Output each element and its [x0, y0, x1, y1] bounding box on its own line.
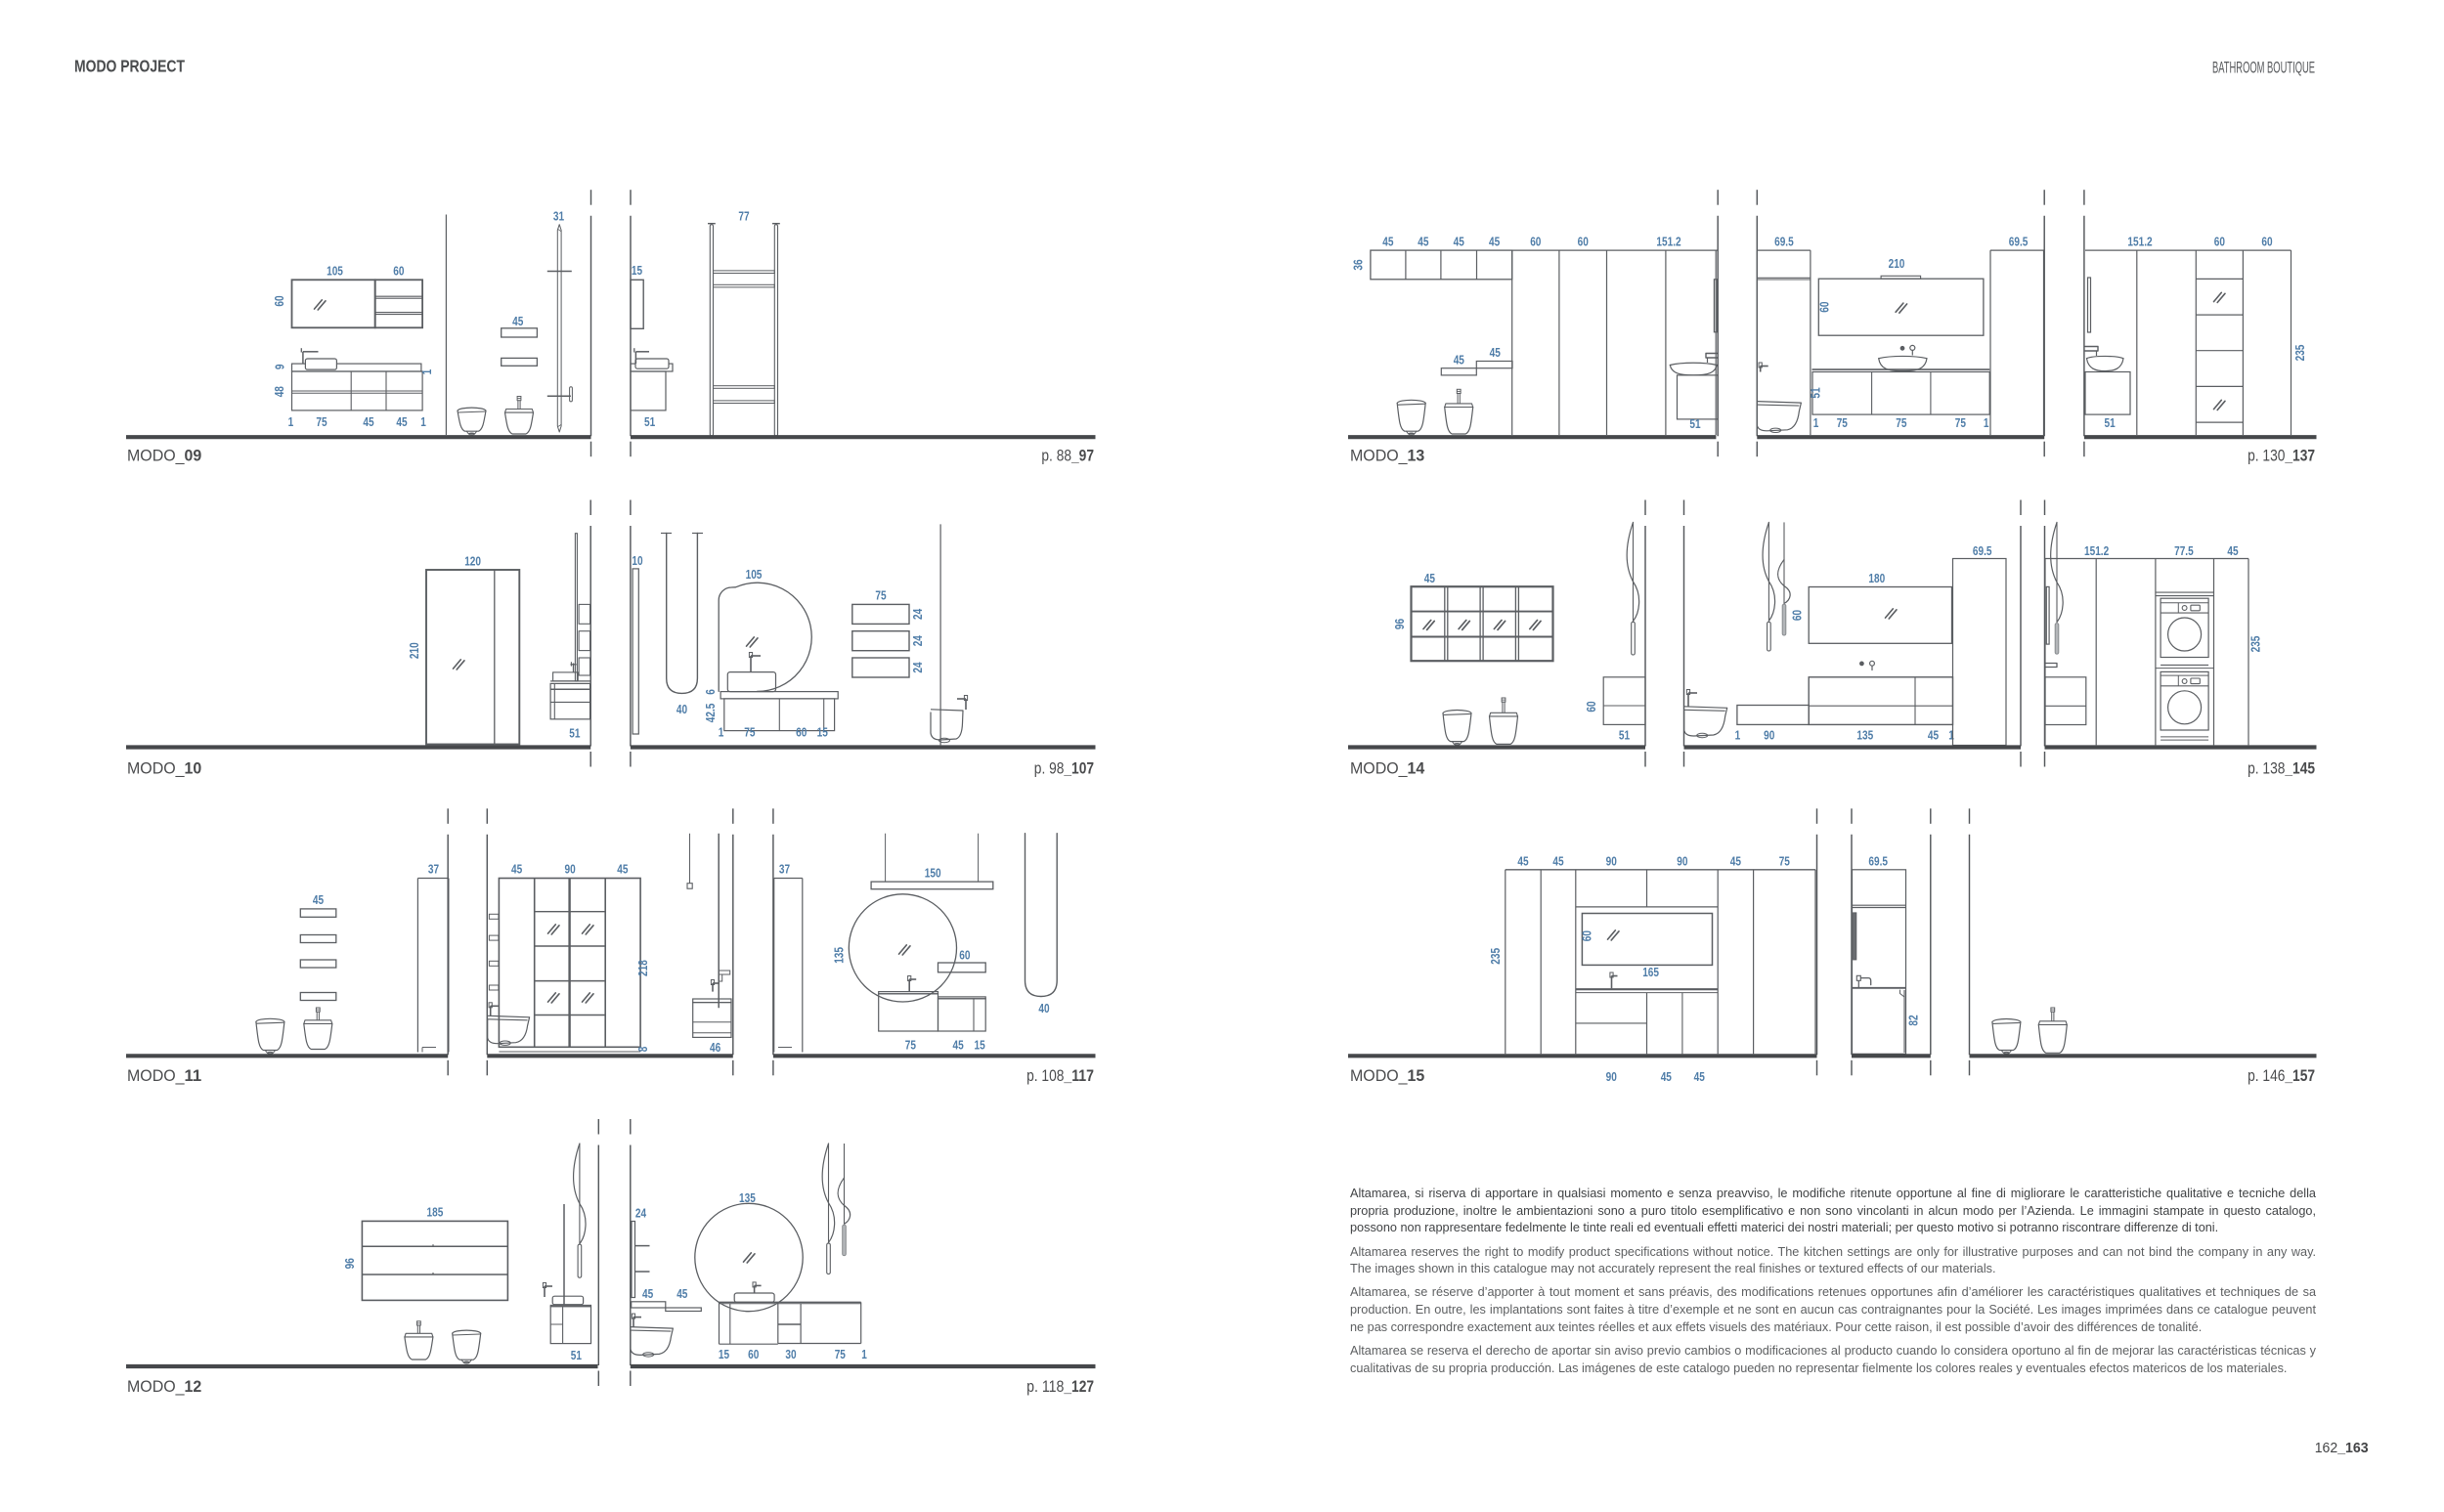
svg-text:15: 15: [719, 1348, 729, 1361]
svg-text:51: 51: [571, 1349, 582, 1362]
svg-text:24: 24: [635, 1207, 646, 1221]
svg-text:45: 45: [1454, 353, 1464, 367]
svg-text:p. 108: p. 108: [1026, 1066, 1064, 1085]
svg-text:45: 45: [363, 415, 373, 429]
svg-text:45: 45: [1928, 729, 1939, 743]
svg-text:120: 120: [464, 555, 481, 569]
svg-text:77: 77: [738, 210, 749, 224]
svg-text:MODO_: MODO_: [1350, 758, 1408, 777]
svg-text:_137: _137: [2285, 447, 2315, 465]
svg-text:60: 60: [748, 1348, 759, 1361]
svg-text:150: 150: [925, 867, 941, 881]
svg-text:24: 24: [911, 635, 925, 646]
svg-text:96: 96: [1393, 619, 1407, 629]
svg-text:45: 45: [642, 1287, 653, 1301]
svg-text:p. 98: p. 98: [1034, 758, 1065, 777]
svg-text:45: 45: [313, 893, 324, 907]
svg-text:151.2: 151.2: [2084, 544, 2109, 558]
svg-text:p. 138: p. 138: [2248, 758, 2285, 777]
svg-text:235: 235: [2249, 636, 2263, 653]
svg-text:69.5: 69.5: [1868, 854, 1888, 868]
svg-text:105: 105: [327, 265, 343, 279]
svg-text:10: 10: [185, 758, 202, 777]
svg-text:60: 60: [393, 265, 404, 279]
svg-text:77.5: 77.5: [2174, 544, 2194, 558]
svg-text:210: 210: [408, 642, 421, 659]
svg-text:135: 135: [739, 1191, 756, 1205]
svg-text:_157: _157: [2285, 1066, 2315, 1085]
svg-text:6: 6: [704, 689, 718, 695]
svg-text:_127: _127: [1064, 1377, 1094, 1396]
svg-text:75: 75: [1896, 416, 1906, 430]
svg-text:1: 1: [420, 369, 434, 375]
svg-text:96: 96: [343, 1258, 357, 1269]
svg-text:90: 90: [1764, 729, 1774, 743]
svg-text:11: 11: [185, 1066, 202, 1085]
svg-text:p. 118: p. 118: [1026, 1377, 1064, 1396]
svg-text:MODO PROJECT: MODO PROJECT: [74, 57, 185, 76]
svg-text:46: 46: [710, 1041, 720, 1055]
svg-text:90: 90: [1677, 854, 1687, 868]
svg-text:235: 235: [1489, 948, 1503, 965]
svg-text:MODO_: MODO_: [127, 1377, 185, 1396]
svg-text:69.5: 69.5: [1774, 236, 1794, 249]
svg-text:48: 48: [273, 386, 286, 397]
svg-text:BATHROOM BOUTIQUE: BATHROOM BOUTIQUE: [2212, 60, 2315, 77]
svg-text:82: 82: [1907, 1015, 1921, 1025]
svg-text:218: 218: [636, 960, 650, 976]
svg-text:60: 60: [1818, 302, 1832, 313]
svg-text:_97: _97: [1070, 447, 1094, 465]
svg-text:75: 75: [1955, 416, 1966, 430]
svg-text:15: 15: [632, 264, 642, 278]
svg-text:90: 90: [1606, 1070, 1617, 1084]
svg-text:60: 60: [1791, 610, 1805, 621]
svg-text:45: 45: [1694, 1070, 1705, 1084]
svg-text:75: 75: [316, 415, 327, 429]
svg-text:45: 45: [953, 1039, 964, 1053]
svg-text:37: 37: [779, 863, 790, 877]
svg-text:1: 1: [1813, 416, 1819, 430]
svg-text:45: 45: [2227, 544, 2238, 558]
svg-text:60: 60: [2214, 236, 2225, 249]
svg-text:31: 31: [553, 210, 564, 224]
svg-text:45: 45: [1454, 236, 1464, 249]
svg-text:40: 40: [1038, 1002, 1049, 1015]
svg-text:30: 30: [785, 1348, 796, 1361]
svg-text:69.5: 69.5: [2009, 236, 2029, 249]
svg-text:180: 180: [1868, 572, 1885, 585]
svg-text:42.5: 42.5: [704, 704, 718, 723]
svg-text:10: 10: [632, 554, 642, 568]
svg-text:60: 60: [2261, 236, 2272, 249]
svg-text:165: 165: [1642, 966, 1659, 979]
svg-text:1: 1: [861, 1348, 867, 1361]
svg-text:162: 162: [2315, 1441, 2338, 1456]
svg-text:45: 45: [617, 863, 628, 877]
svg-text:p. 130: p. 130: [2248, 447, 2285, 465]
svg-text:45: 45: [511, 863, 522, 877]
svg-text:75: 75: [905, 1039, 916, 1053]
svg-text:60: 60: [273, 295, 286, 306]
svg-text:105: 105: [746, 568, 763, 582]
svg-text:_145: _145: [2285, 758, 2315, 777]
svg-text:1: 1: [288, 415, 294, 429]
svg-text:24: 24: [911, 609, 925, 620]
svg-text:60: 60: [959, 949, 970, 963]
svg-text:75: 75: [744, 726, 755, 740]
svg-text:45: 45: [1517, 854, 1528, 868]
svg-text:45: 45: [1418, 236, 1428, 249]
svg-text:1: 1: [420, 415, 426, 429]
svg-text:p. 146: p. 146: [2248, 1066, 2285, 1085]
svg-text:45: 45: [1382, 236, 1393, 249]
svg-text:45: 45: [512, 315, 523, 328]
svg-text:1: 1: [1735, 729, 1741, 743]
svg-text:36: 36: [1352, 259, 1366, 270]
svg-text:210: 210: [1889, 257, 1905, 271]
svg-text:75: 75: [835, 1348, 846, 1361]
svg-text:13: 13: [1408, 447, 1425, 465]
svg-text:135: 135: [1856, 729, 1873, 743]
svg-text:MODO_: MODO_: [127, 1066, 185, 1085]
svg-text:51: 51: [2105, 416, 2116, 430]
svg-text:14: 14: [1408, 758, 1425, 777]
svg-text:135: 135: [833, 947, 847, 964]
svg-text:51: 51: [1810, 387, 1823, 398]
svg-text:151.2: 151.2: [1656, 236, 1680, 249]
svg-text:90: 90: [565, 863, 576, 877]
svg-text:51: 51: [1619, 729, 1630, 743]
svg-text:1: 1: [1984, 416, 1989, 430]
svg-text:51: 51: [569, 727, 580, 741]
svg-text:MODO_: MODO_: [127, 447, 185, 465]
svg-text:24: 24: [911, 662, 925, 672]
svg-text:45: 45: [1661, 1070, 1672, 1084]
svg-text:15: 15: [817, 726, 828, 740]
svg-text:51: 51: [1689, 417, 1700, 431]
svg-text:69.5: 69.5: [1973, 544, 1992, 558]
svg-text:45: 45: [1489, 236, 1500, 249]
svg-text:40: 40: [676, 703, 687, 716]
svg-text:60: 60: [796, 726, 807, 740]
svg-text:45: 45: [1424, 572, 1435, 585]
svg-text:51: 51: [644, 415, 655, 429]
svg-text:15: 15: [1408, 1066, 1425, 1085]
svg-text:60: 60: [1530, 236, 1541, 249]
svg-text:60: 60: [1581, 930, 1594, 941]
svg-text:15: 15: [975, 1039, 985, 1053]
svg-text:MODO_: MODO_: [1350, 1066, 1408, 1085]
svg-text:_163: _163: [2336, 1441, 2369, 1456]
svg-text:MODO_: MODO_: [1350, 447, 1408, 465]
svg-text:75: 75: [1837, 416, 1848, 430]
svg-text:45: 45: [676, 1287, 687, 1301]
svg-text:60: 60: [1578, 236, 1589, 249]
svg-text:_117: _117: [1064, 1066, 1094, 1085]
svg-text:8: 8: [636, 1047, 650, 1053]
svg-text:90: 90: [1606, 854, 1617, 868]
svg-text:185: 185: [427, 1206, 444, 1220]
svg-text:75: 75: [1779, 854, 1790, 868]
svg-text:45: 45: [1490, 346, 1501, 360]
svg-text:75: 75: [875, 589, 886, 603]
svg-text:45: 45: [396, 415, 407, 429]
svg-text:MODO_: MODO_: [127, 758, 185, 777]
svg-text:45: 45: [1730, 854, 1741, 868]
svg-text:1: 1: [719, 726, 724, 740]
svg-text:p. 88: p. 88: [1041, 447, 1071, 465]
svg-text:9: 9: [274, 364, 287, 369]
svg-text:_107: _107: [1064, 758, 1094, 777]
svg-text:60: 60: [1585, 701, 1598, 712]
svg-text:12: 12: [185, 1377, 202, 1396]
svg-text:37: 37: [428, 863, 439, 877]
svg-text:45: 45: [1552, 854, 1563, 868]
svg-text:151.2: 151.2: [2127, 236, 2152, 249]
svg-text:09: 09: [185, 447, 202, 465]
svg-text:235: 235: [2293, 345, 2307, 362]
